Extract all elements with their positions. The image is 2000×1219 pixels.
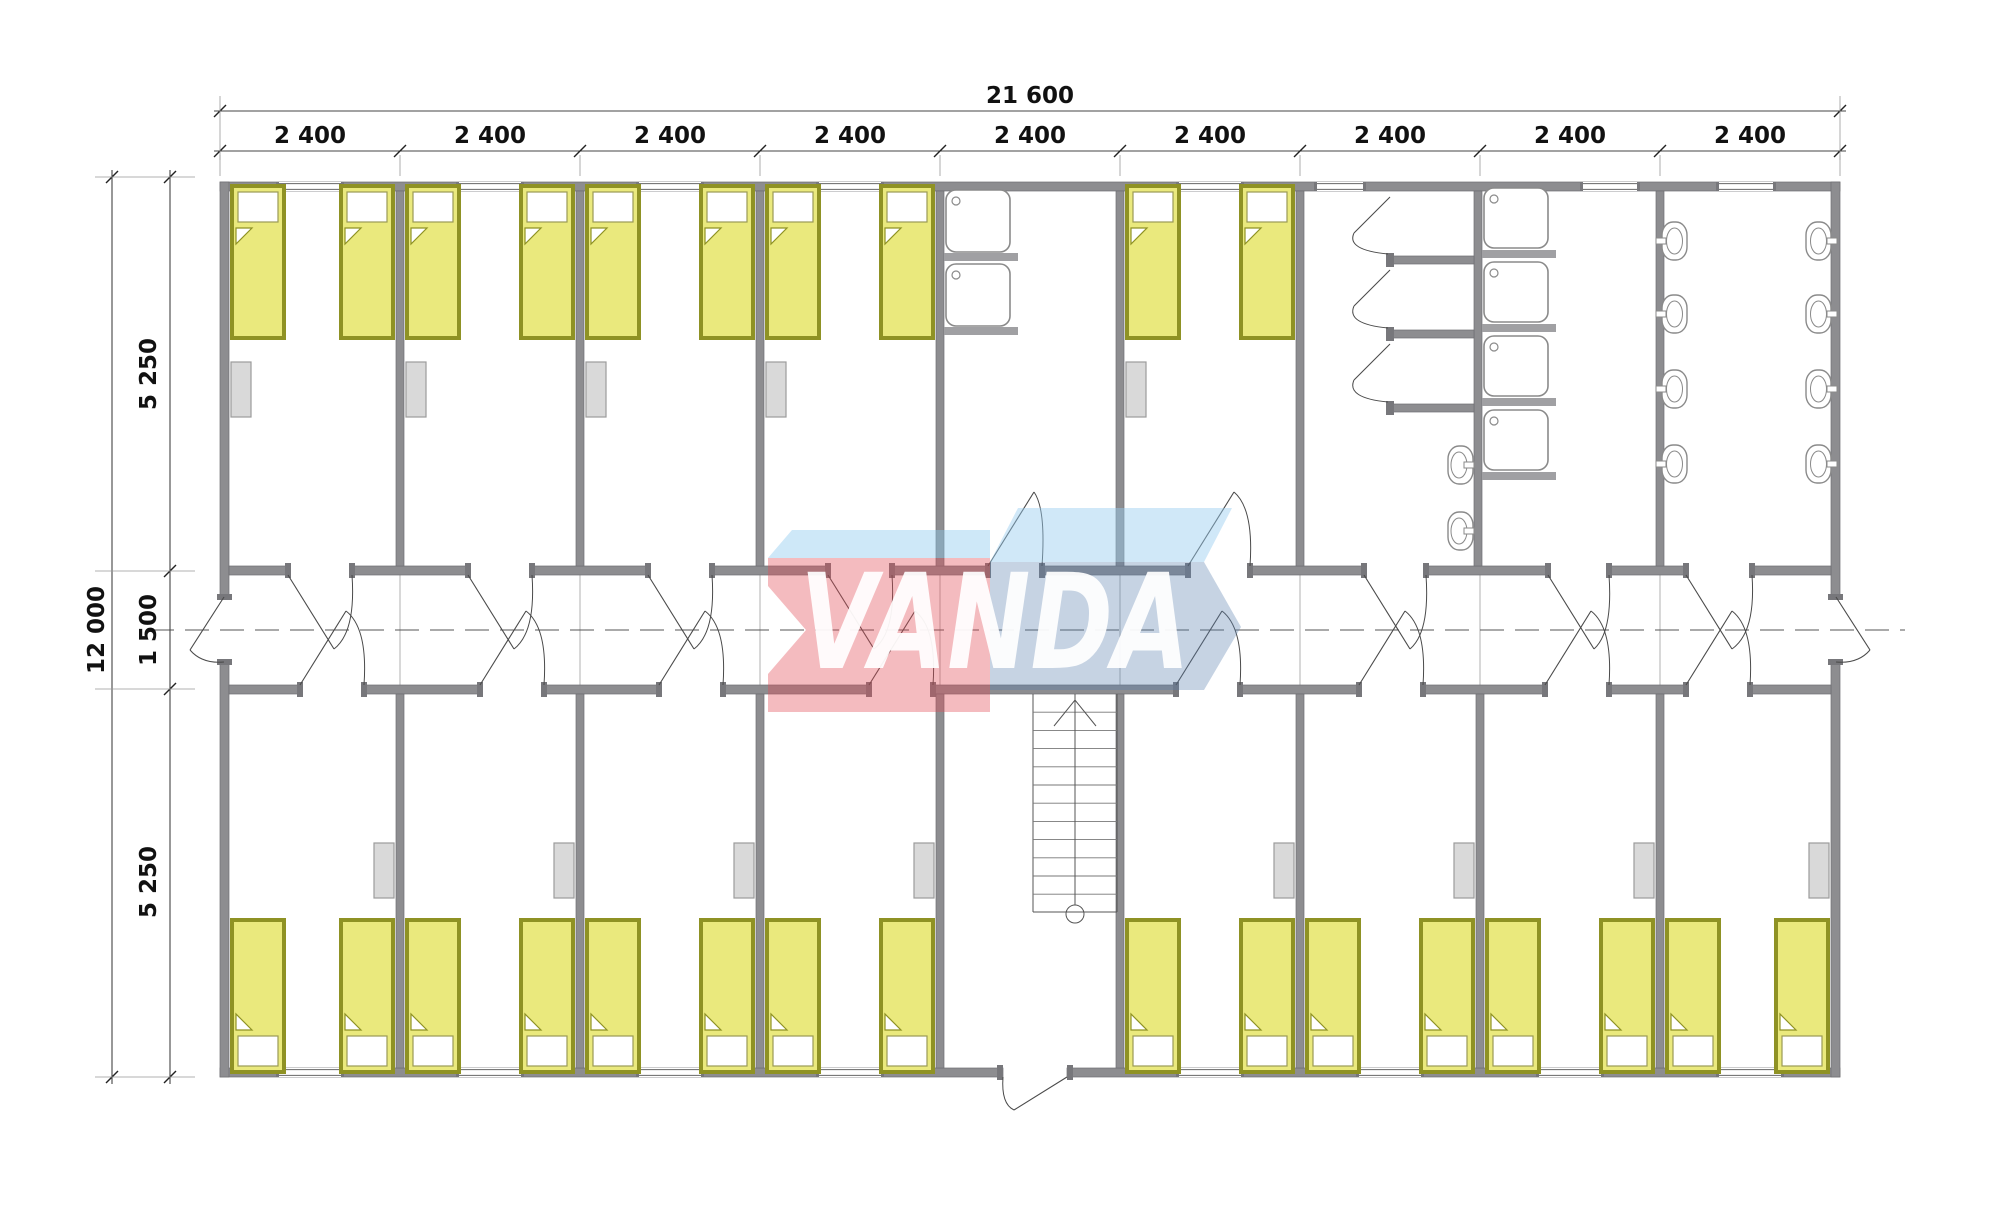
dim-module-2: 2 400 [454,123,526,149]
door-swing-arc [526,611,545,685]
door-leaf [300,611,346,685]
wall-corridor-south [1240,685,1359,694]
door-swing-arc [1353,306,1388,328]
wall-partition-bottom [936,694,944,1068]
door-post [997,1065,1003,1080]
door-swing-arc [1353,380,1388,402]
door-leaf [1545,611,1591,685]
window-post [1580,182,1583,191]
dim-module-4: 2 400 [814,123,886,149]
wall-corridor-north [352,566,468,575]
wall-exterior-left [220,182,229,597]
bed-pillow [593,1036,633,1066]
door-post [1828,594,1843,600]
bed-pillow [773,1036,813,1066]
wall-wc-cubicle [1390,256,1474,264]
bed-pillow [1313,1036,1353,1066]
dim-module-6: 2 400 [1174,123,1246,149]
cabinet-icon [586,362,606,417]
cabinet-icon [1809,843,1829,898]
wall-corridor-south [229,685,300,694]
wall-corridor-north [1609,566,1686,575]
cabinet-icon [914,843,934,898]
dim-total-height: 12 000 [84,586,110,674]
wall-partition-bottom [756,694,764,1068]
door-leaf [1354,197,1390,233]
door-leaf [1548,575,1594,649]
bed-pillow [1133,192,1173,222]
vanda-watermark-logo: VANDA [768,508,1241,712]
cabinet-icon [1454,843,1474,898]
door-swing-arc [1405,611,1424,685]
window-post [1314,182,1317,191]
bed-pillow [1247,1036,1287,1066]
wall-sanitary-center [1474,191,1482,566]
door-post [217,594,232,600]
door-post [1067,1065,1073,1080]
staircase-up-icon [1033,694,1117,923]
urinal-tap [1827,311,1837,317]
dim-module-7: 2 400 [1354,123,1426,149]
door-leaf [1014,1077,1067,1110]
wall-corridor-north [1752,566,1831,575]
door-swing-arc [705,611,724,685]
urinal-tap [1827,461,1837,467]
door-post [1386,253,1394,267]
cabinet-icon [734,843,754,898]
bed-pillow [707,1036,747,1066]
window-post [1637,182,1640,191]
bed-pillow [347,1036,387,1066]
wall-corridor-south [1750,685,1831,694]
bed-pillow [1133,1036,1173,1066]
wall-partition-top [396,191,404,566]
wall-corridor-north [1250,566,1364,575]
wall-partition-top [576,191,584,566]
wall-exterior-left [220,662,229,1077]
wall-wc-cubicle [1390,404,1474,412]
dim-module-1: 2 400 [274,123,346,149]
door-leaf [480,611,526,685]
wall-corridor-north [1426,566,1548,575]
urinal-tap [1656,238,1666,244]
wall-partition-bottom [1296,694,1304,1068]
door-post [1386,327,1394,341]
door-leaf [659,611,705,685]
square-sink-icon [946,190,1010,252]
wall-partition-top [936,191,944,566]
door-leaf [1836,597,1870,650]
cabinet-icon [554,843,574,898]
wall-partition-bottom [396,694,404,1068]
urinal-tap [1656,461,1666,467]
cabinet-icon [1126,362,1146,417]
wall-corridor-north [532,566,648,575]
wall-corridor-south [544,685,659,694]
wall-partition-top [1296,191,1304,566]
wall-partition-bottom [1656,694,1664,1068]
window-post [1716,182,1719,191]
door-leaf [1354,344,1390,380]
window-post [1773,182,1776,191]
door-swing-arc [514,575,533,649]
urinal-tap [1656,311,1666,317]
wall-corridor-south [1423,685,1545,694]
square-sink-icon [946,264,1010,326]
door-leaf [1686,575,1732,649]
bed-pillow [238,192,278,222]
cabinet-icon [231,362,251,417]
wall-partition-top [756,191,764,566]
bed-pillow [1673,1036,1713,1066]
door-leaf [288,575,334,649]
shower-stall-icon [1484,262,1548,322]
cabinet-icon [406,362,426,417]
dim-seg-lower: 5 250 [136,846,162,918]
wall-partition-bottom [1476,694,1484,1068]
sink-shelf [944,253,1018,261]
door-leaf [190,597,224,650]
bed-pillow [593,192,633,222]
bed-pillow [887,192,927,222]
wall-partition-bottom [576,694,584,1068]
shower-shelf [1482,324,1556,332]
wall-corridor-south [364,685,480,694]
bed-pillow [413,1036,453,1066]
door-swing-arc [1594,575,1610,649]
door-swing-arc [1003,1077,1014,1110]
dim-module-9: 2 400 [1714,123,1786,149]
wall-corridor-south [1609,685,1686,694]
shower-shelf [1482,250,1556,258]
bed-pillow [1782,1036,1822,1066]
cabinet-icon [374,843,394,898]
dim-seg-corridor: 1 500 [136,594,162,666]
door-leaf [1686,611,1732,685]
bed-pillow [413,192,453,222]
bed-pillow [1247,192,1287,222]
urinal-tap [1827,238,1837,244]
door-swing-arc [1732,575,1753,649]
stair-start-marker [1066,905,1084,923]
shower-shelf [1482,398,1556,406]
dim-module-3: 2 400 [634,123,706,149]
door-swing-arc [1410,575,1427,649]
door-leaf [468,575,514,649]
wall-exterior-right [1831,662,1840,1077]
cabinet-icon [766,362,786,417]
bed-pillow [773,192,813,222]
bed-pillow [707,192,747,222]
shower-shelf [1482,472,1556,480]
watermark-text: VANDA [800,546,1190,700]
bed-pillow [527,1036,567,1066]
wall-wc-cubicle [1390,330,1474,338]
door-swing-arc [346,611,365,685]
washbasin-tap [1464,528,1474,534]
urinal-tap [1656,386,1666,392]
shower-stall-icon [1484,410,1548,470]
urinal-tap [1827,386,1837,392]
wall-corridor-north [229,566,288,575]
door-swing-arc [1353,233,1388,254]
dim-total-width: 21 600 [986,83,1074,109]
bed-pillow [1607,1036,1647,1066]
door-swing-arc [694,575,713,649]
door-swing-arc [334,575,353,649]
door-swing-arc [1732,611,1751,685]
floor-plan-drawing: 21 600 2 400 2 400 2 400 2 400 2 400 2 4… [0,0,2000,1219]
door-leaf [648,575,694,649]
cabinet-icon [1274,843,1294,898]
washbasin-tap [1464,462,1474,468]
dim-module-5: 2 400 [994,123,1066,149]
door-post [1386,401,1394,415]
bed-pillow [1493,1036,1533,1066]
bed-pillow [527,192,567,222]
dim-seg-upper: 5 250 [136,338,162,410]
door-swing-arc [1234,492,1251,566]
bed-pillow [347,192,387,222]
window-post [1363,182,1366,191]
floor-plan-page: 21 600 2 400 2 400 2 400 2 400 2 400 2 4… [0,0,2000,1219]
shower-stall-icon [1484,188,1548,248]
cabinet-icon [1634,843,1654,898]
door-leaf [1359,611,1405,685]
door-leaf [1364,575,1410,649]
door-leaf [1354,270,1390,306]
shower-stall-icon [1484,336,1548,396]
bed-pillow [238,1036,278,1066]
bed-pillow [1427,1036,1467,1066]
bed-pillow [887,1036,927,1066]
dim-module-8: 2 400 [1534,123,1606,149]
sink-shelf [944,327,1018,335]
